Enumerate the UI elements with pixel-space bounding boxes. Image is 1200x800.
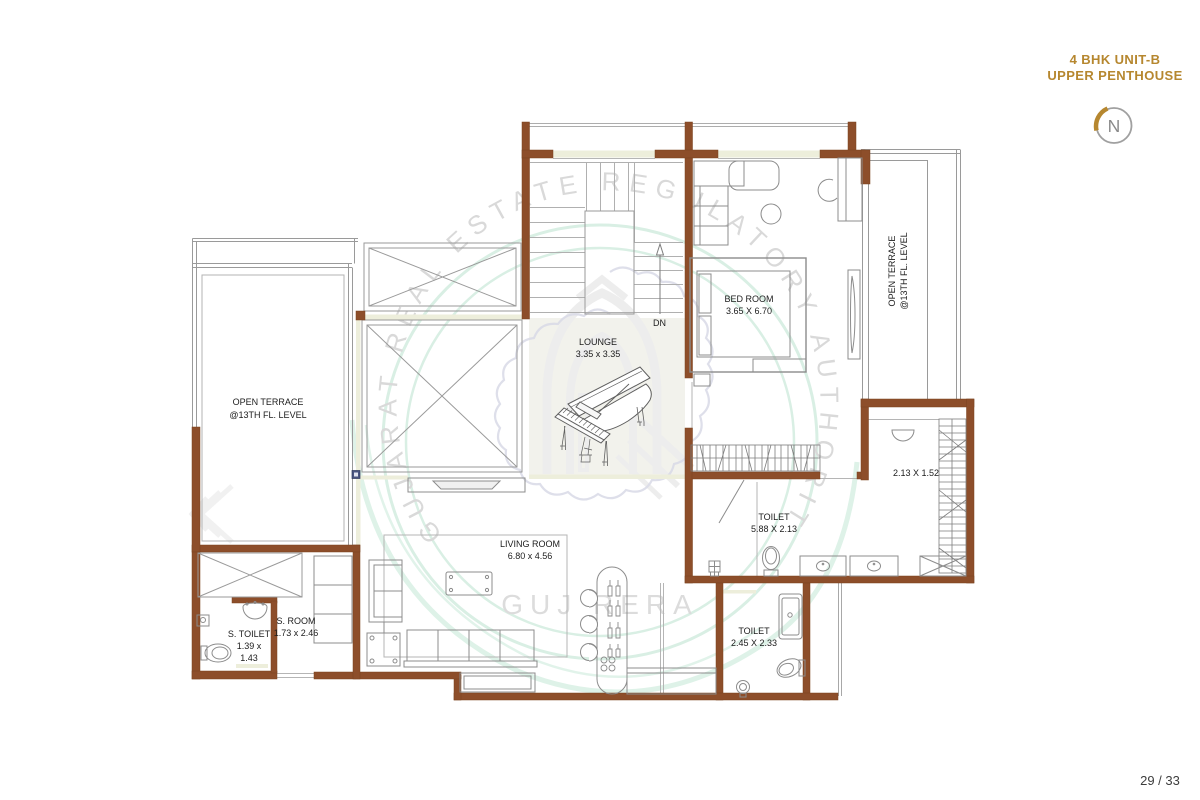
svg-text:@13TH FL. LEVEL: @13TH FL. LEVEL (899, 232, 909, 309)
svg-text:2.45 X 2.33: 2.45 X 2.33 (731, 638, 777, 648)
svg-text:TOILET: TOILET (738, 626, 770, 636)
svg-text:UPPER PENTHOUSE: UPPER PENTHOUSE (1047, 68, 1182, 83)
svg-text:@13TH FL. LEVEL: @13TH FL. LEVEL (229, 410, 306, 420)
svg-text:3.65 X 6.70: 3.65 X 6.70 (726, 306, 772, 316)
svg-text:1.43: 1.43 (240, 653, 258, 663)
svg-text:5.88 X 2.13: 5.88 X 2.13 (751, 524, 797, 534)
svg-text:4 BHK UNIT-B: 4 BHK UNIT-B (1070, 52, 1161, 67)
svg-text:S. TOILET: S. TOILET (228, 629, 271, 639)
svg-text:TOILET: TOILET (758, 512, 790, 522)
svg-text:29 / 33: 29 / 33 (1140, 773, 1180, 788)
svg-text:S. ROOM: S. ROOM (276, 616, 315, 626)
svg-text:DN: DN (653, 318, 666, 328)
svg-text:3.35 x 3.35: 3.35 x 3.35 (576, 349, 621, 359)
svg-text:OPEN TERRACE: OPEN TERRACE (233, 397, 304, 407)
svg-text:N: N (1108, 116, 1121, 136)
svg-text:OPEN TERRACE: OPEN TERRACE (887, 236, 897, 307)
svg-text:LOUNGE: LOUNGE (579, 337, 617, 347)
svg-text:1.39 x: 1.39 x (237, 641, 262, 651)
svg-text:LIVING ROOM: LIVING ROOM (500, 539, 560, 549)
svg-text:BED ROOM: BED ROOM (724, 294, 773, 304)
svg-text:2.13 X 1.52: 2.13 X 1.52 (893, 468, 939, 478)
svg-text:1.73 x 2.46: 1.73 x 2.46 (274, 628, 319, 638)
svg-text:GUJ RERA: GUJ RERA (501, 589, 699, 620)
svg-text:6.80 x 4.56: 6.80 x 4.56 (508, 551, 553, 561)
